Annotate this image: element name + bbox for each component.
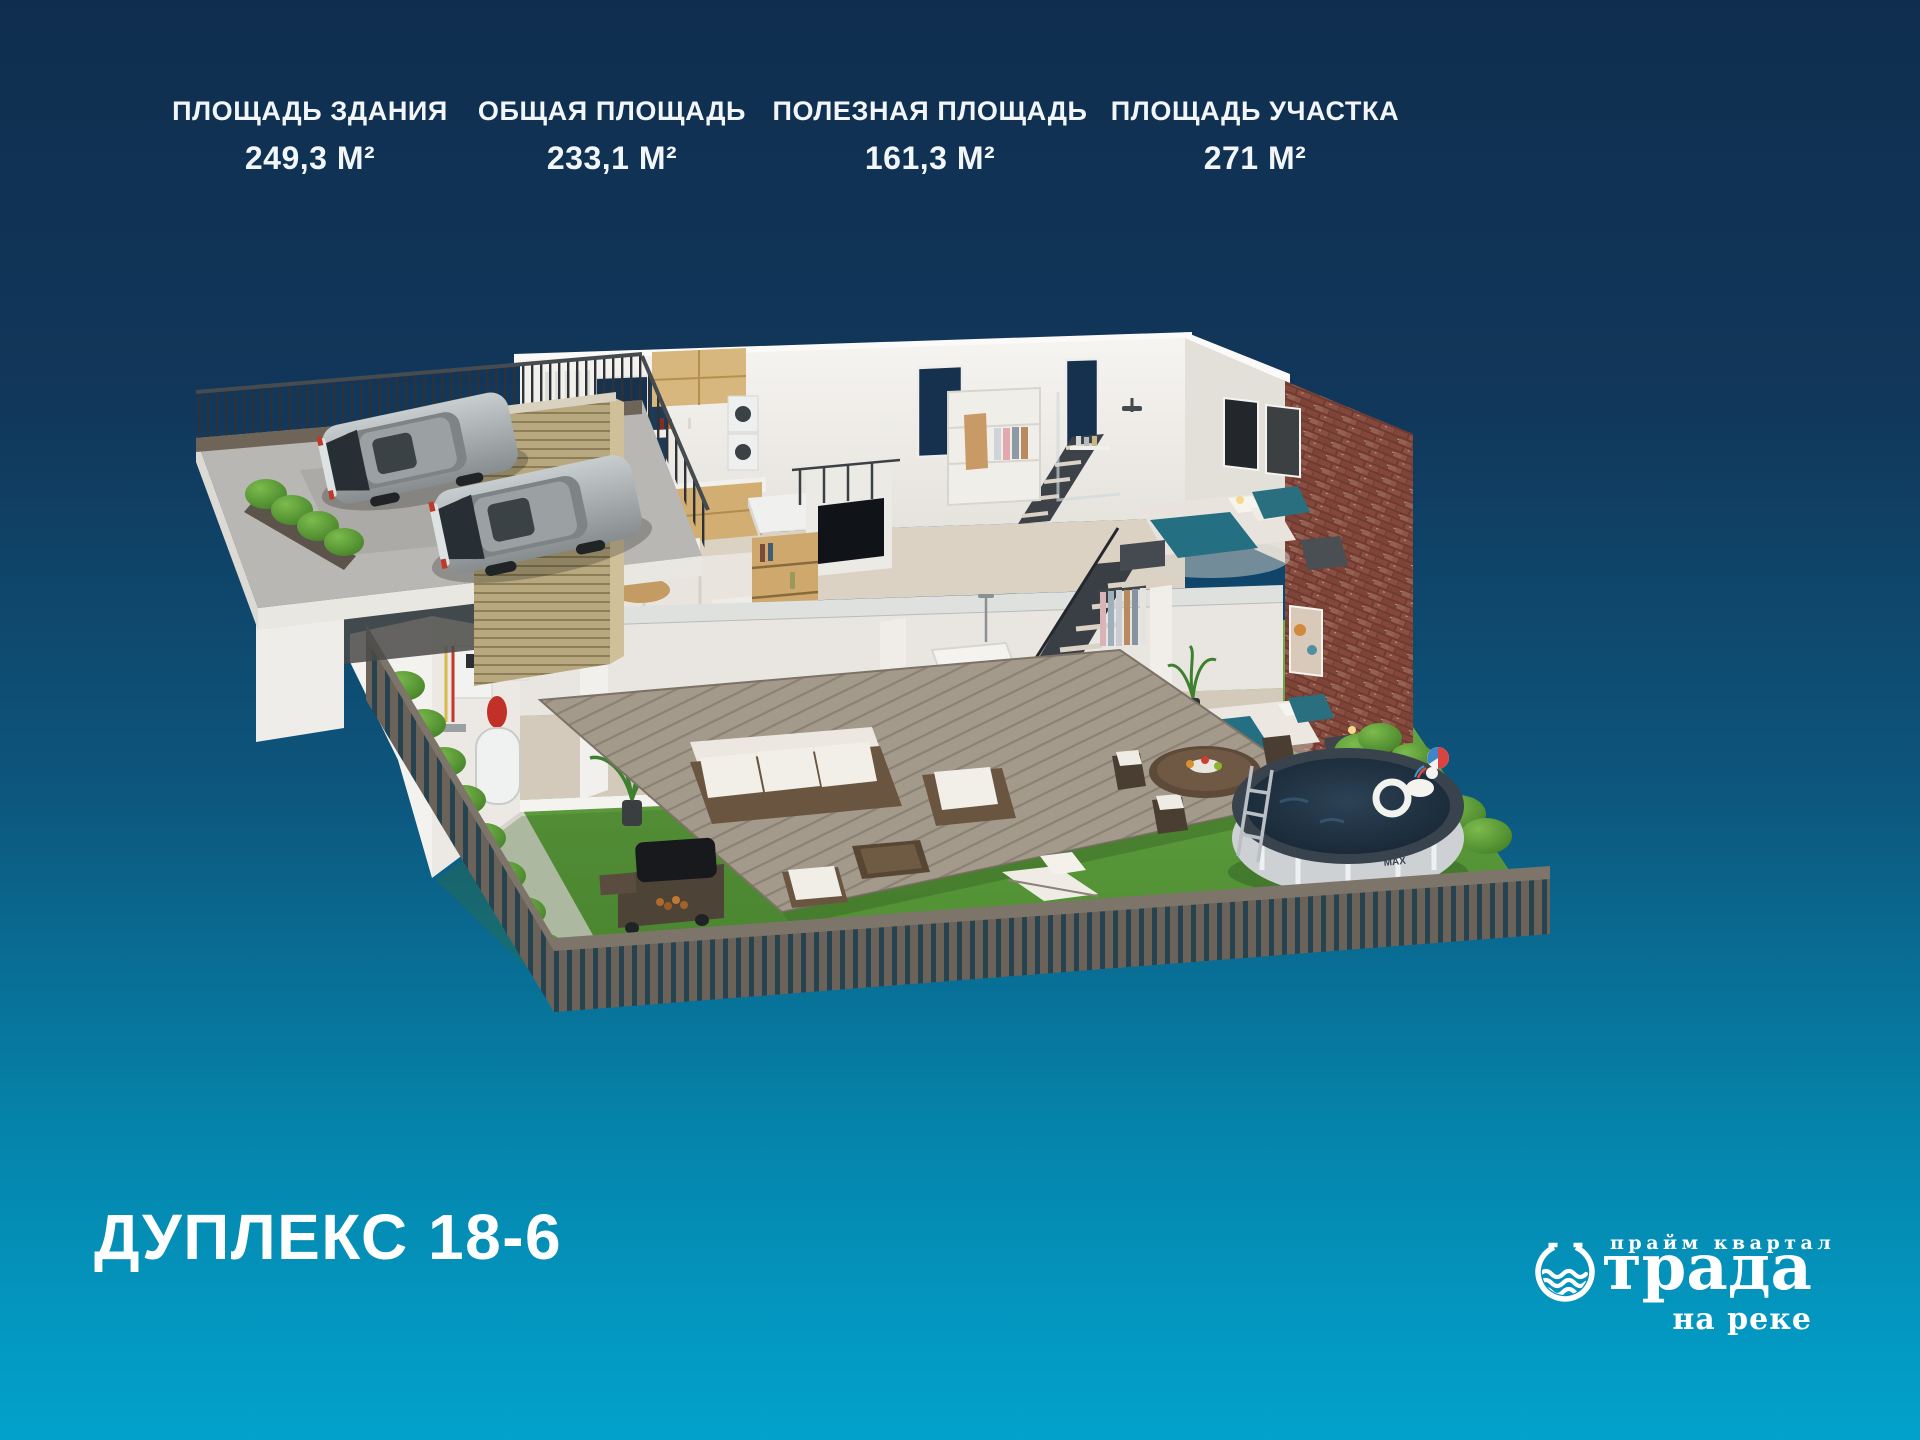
- pool-water: [1246, 758, 1450, 854]
- pool: Bestway MAX: [1228, 747, 1468, 896]
- stat-building-area: ПЛОЩАДЬ ЗДАНИЯ 249,3 М²: [172, 96, 448, 177]
- logo-brand-name: трада: [1602, 1236, 1812, 1300]
- poster-page: { "background": {"top": "#0f2e4f", "bott…: [0, 0, 1920, 1440]
- stat-plot-area: ПЛОЩАДЬ УЧАСТКА 271 М²: [1111, 96, 1399, 177]
- stat-value: 271 М²: [1111, 140, 1399, 177]
- outdoor-coffee-table: [852, 840, 930, 879]
- stat-label: ПЛОЩАДЬ УЧАСТКА: [1111, 96, 1399, 127]
- tv-screen: [818, 498, 884, 564]
- window-b: [1066, 359, 1098, 448]
- art-frame-1: [1224, 398, 1258, 470]
- art-colorful: [1290, 606, 1322, 676]
- stat-value: 249,3 М²: [172, 140, 448, 177]
- stat-label: ПОЛЕЗНАЯ ПЛОЩАДЬ: [772, 96, 1087, 127]
- ottoman: [782, 866, 848, 908]
- nightstand: [1300, 536, 1348, 570]
- stat-usable-area: ПОЛЕЗНАЯ ПЛОЩАДЬ 161,3 М²: [772, 96, 1087, 177]
- expansion-tank-red: [487, 696, 507, 728]
- brand-logo: прайм квартал трада на реке: [1530, 1222, 1830, 1342]
- art-frame-2: [1266, 405, 1300, 477]
- hanging-jacket: [964, 413, 988, 470]
- walk-in-closet: [948, 388, 1040, 505]
- stat-value: 233,1 М²: [478, 140, 746, 177]
- stat-label: ПЛОЩАДЬ ЗДАНИЯ: [172, 96, 448, 127]
- outdoor-armchair: [922, 767, 1016, 826]
- page-title: ДУПЛЕКС 18-6: [94, 1200, 562, 1274]
- stat-total-area: ОБЩАЯ ПЛОЩАДЬ 233,1 М²: [478, 96, 746, 177]
- logo-subtitle: на реке: [1600, 1302, 1812, 1337]
- beach-ball: [1427, 747, 1449, 769]
- stat-value: 161,3 М²: [772, 140, 1087, 177]
- area-stats-row: ПЛОЩАДЬ ЗДАНИЯ 249,3 М² ОБЩАЯ ПЛОЩАДЬ 23…: [0, 0, 1920, 200]
- otrada-wave-icon: [1530, 1236, 1602, 1308]
- stat-label: ОБЩАЯ ПЛОЩАДЬ: [478, 96, 746, 127]
